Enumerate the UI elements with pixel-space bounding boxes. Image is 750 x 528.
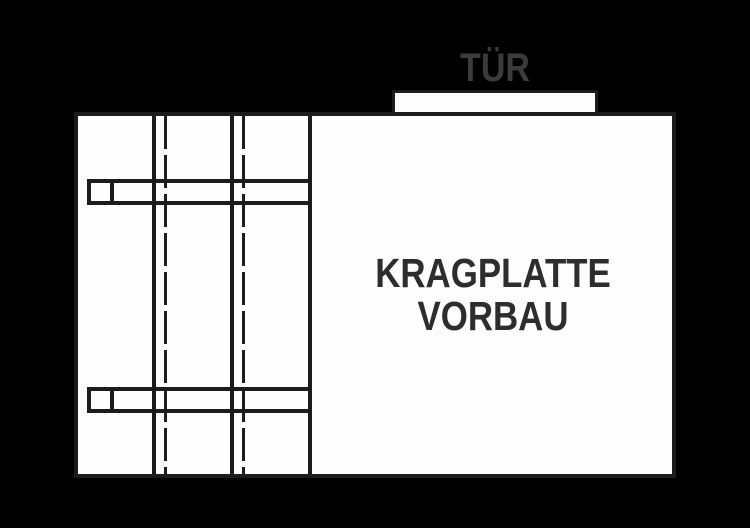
wall-line-dashed-2 (242, 116, 245, 474)
area-label: KRAGPLATTE VORBAU (338, 252, 647, 338)
section-boundary-line (308, 116, 312, 474)
door-label: TÜR (407, 48, 582, 88)
wall-line-solid-2 (230, 116, 234, 474)
anchor-bar-bottom (87, 387, 312, 413)
area-label-line1: KRAGPLATTE (338, 252, 647, 295)
wall-line-solid-1 (152, 116, 156, 474)
wall-line-dashed-1 (164, 116, 167, 474)
area-label-line2: VORBAU (338, 295, 647, 338)
anchor-bar-bottom-divider (110, 391, 114, 409)
anchor-bar-top (87, 179, 312, 205)
diagram-canvas: TÜR KRAGPLATTE VORBAU (0, 0, 750, 528)
anchor-bar-top-divider (110, 183, 114, 201)
door-shape (392, 90, 598, 112)
